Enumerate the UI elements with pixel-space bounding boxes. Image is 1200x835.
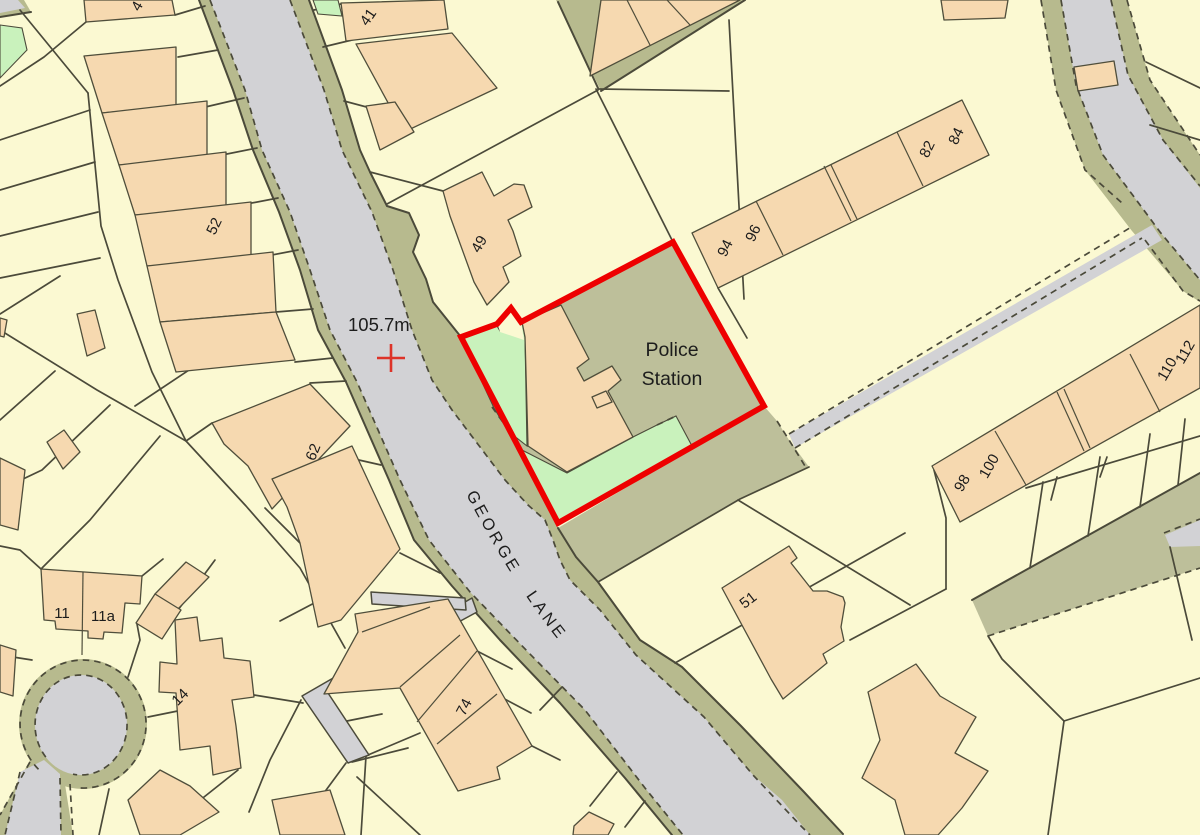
svg-text:Police: Police [645, 339, 698, 361]
svg-text:Station: Station [642, 368, 703, 390]
svg-text:11: 11 [54, 605, 70, 622]
svg-text:105.7m: 105.7m [348, 314, 410, 335]
svg-text:11a: 11a [91, 608, 116, 625]
